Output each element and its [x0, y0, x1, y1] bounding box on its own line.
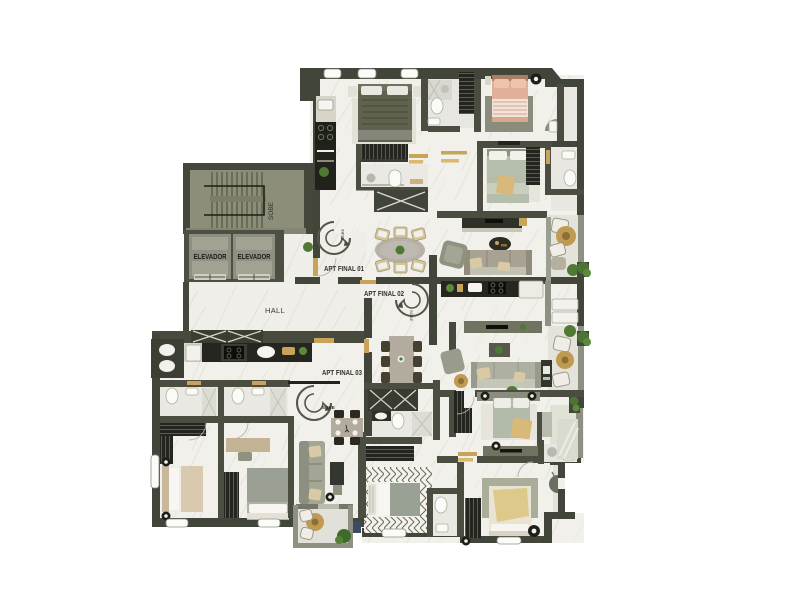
svg-text:APT FINAL 01: APT FINAL 01 — [324, 264, 364, 273]
svg-text:SOBE: SOBE — [322, 405, 335, 410]
svg-text:APT FINAL 02: APT FINAL 02 — [364, 289, 404, 298]
svg-text:ELEVADOR: ELEVADOR — [194, 254, 227, 261]
svg-text:ELEVADOR: ELEVADOR — [238, 254, 271, 261]
svg-text:SOBE: SOBE — [340, 229, 345, 240]
svg-text:SOBE: SOBE — [268, 201, 275, 220]
svg-text:APT FINAL 03: APT FINAL 03 — [322, 368, 362, 377]
svg-text:HALL: HALL — [265, 306, 285, 315]
svg-text:SOBE: SOBE — [409, 310, 414, 321]
